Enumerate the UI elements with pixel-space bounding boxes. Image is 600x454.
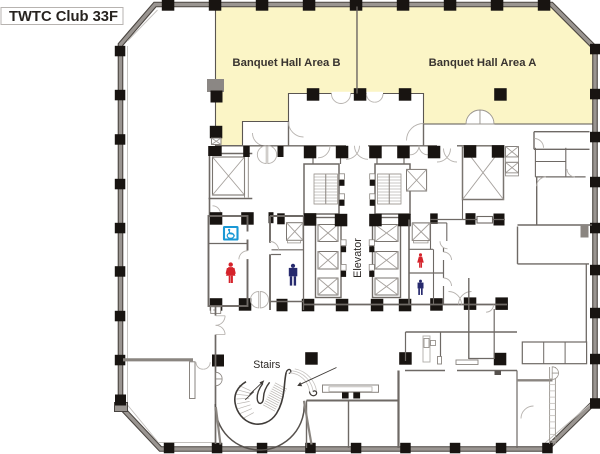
svg-text:Banquet Hall Area B: Banquet Hall Area B [232,57,340,69]
svg-text:Banquet Hall Area A: Banquet Hall Area A [429,57,537,69]
svg-text:Stairs: Stairs [253,359,280,371]
svg-text:Elevator: Elevator [352,238,364,278]
svg-text:TWTC Club 33F: TWTC Club 33F [9,8,118,25]
